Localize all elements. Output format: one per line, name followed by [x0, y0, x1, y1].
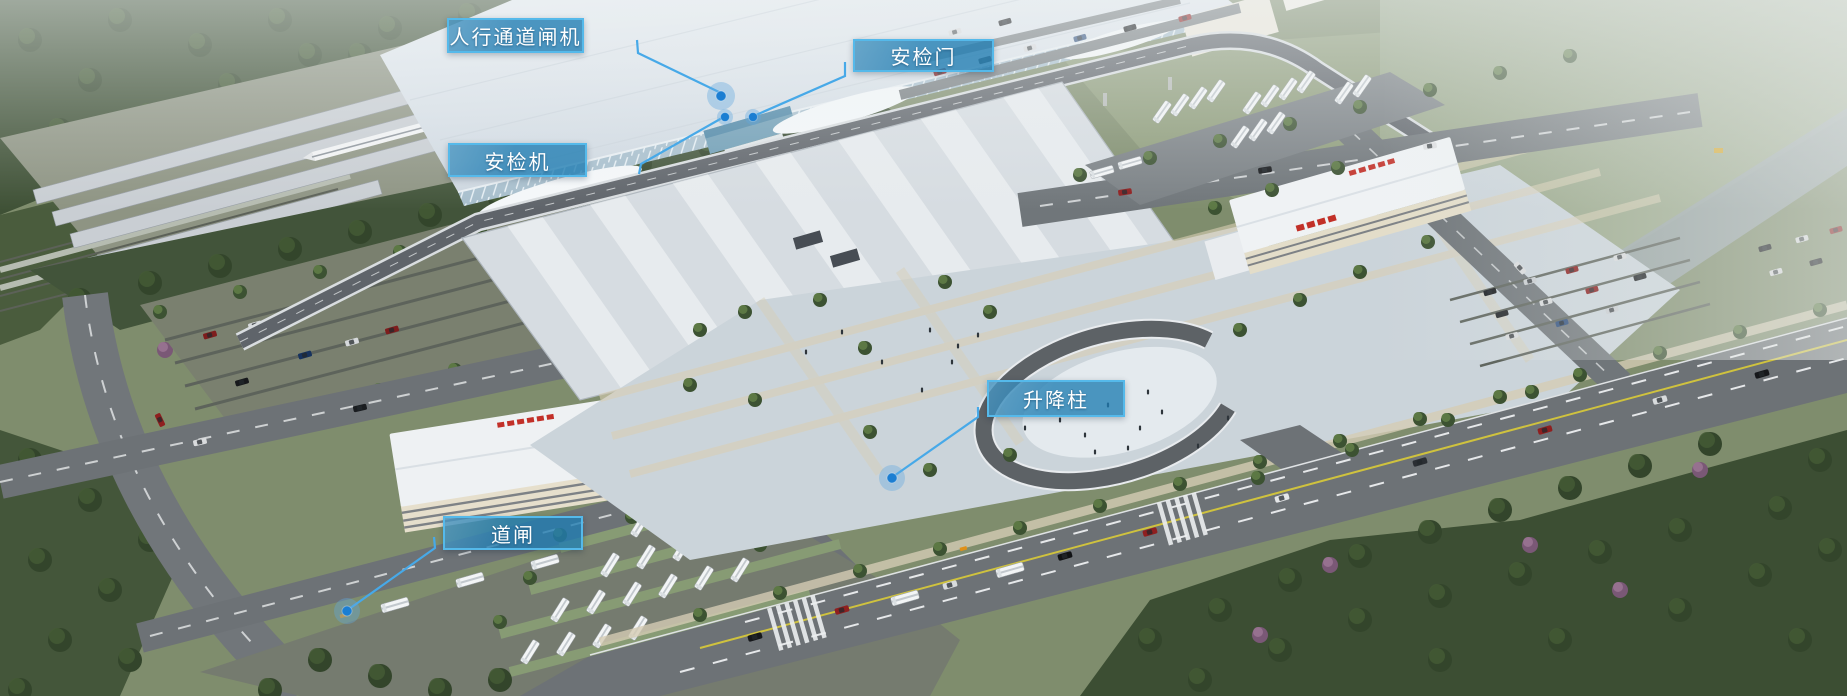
aerial-rendering: 人行通道闸机 安检门 安检机 升降柱 道闸 [0, 0, 1847, 696]
callout-pedestrian-channel-gate[interactable]: 人行通道闸机 [447, 18, 584, 53]
callout-label: 升降柱 [1023, 384, 1089, 413]
callout-barrier-gate[interactable]: 道闸 [443, 516, 583, 550]
callout-label: 安检机 [485, 146, 551, 175]
callout-label: 道闸 [491, 519, 535, 548]
callout-security-machine[interactable]: 安检机 [448, 143, 587, 177]
callout-label: 安检门 [891, 41, 957, 70]
callout-lifting-bollard[interactable]: 升降柱 [987, 380, 1125, 417]
scene-art [0, 0, 1847, 696]
callout-label: 人行通道闸机 [450, 21, 582, 50]
callout-security-door[interactable]: 安检门 [853, 39, 994, 72]
